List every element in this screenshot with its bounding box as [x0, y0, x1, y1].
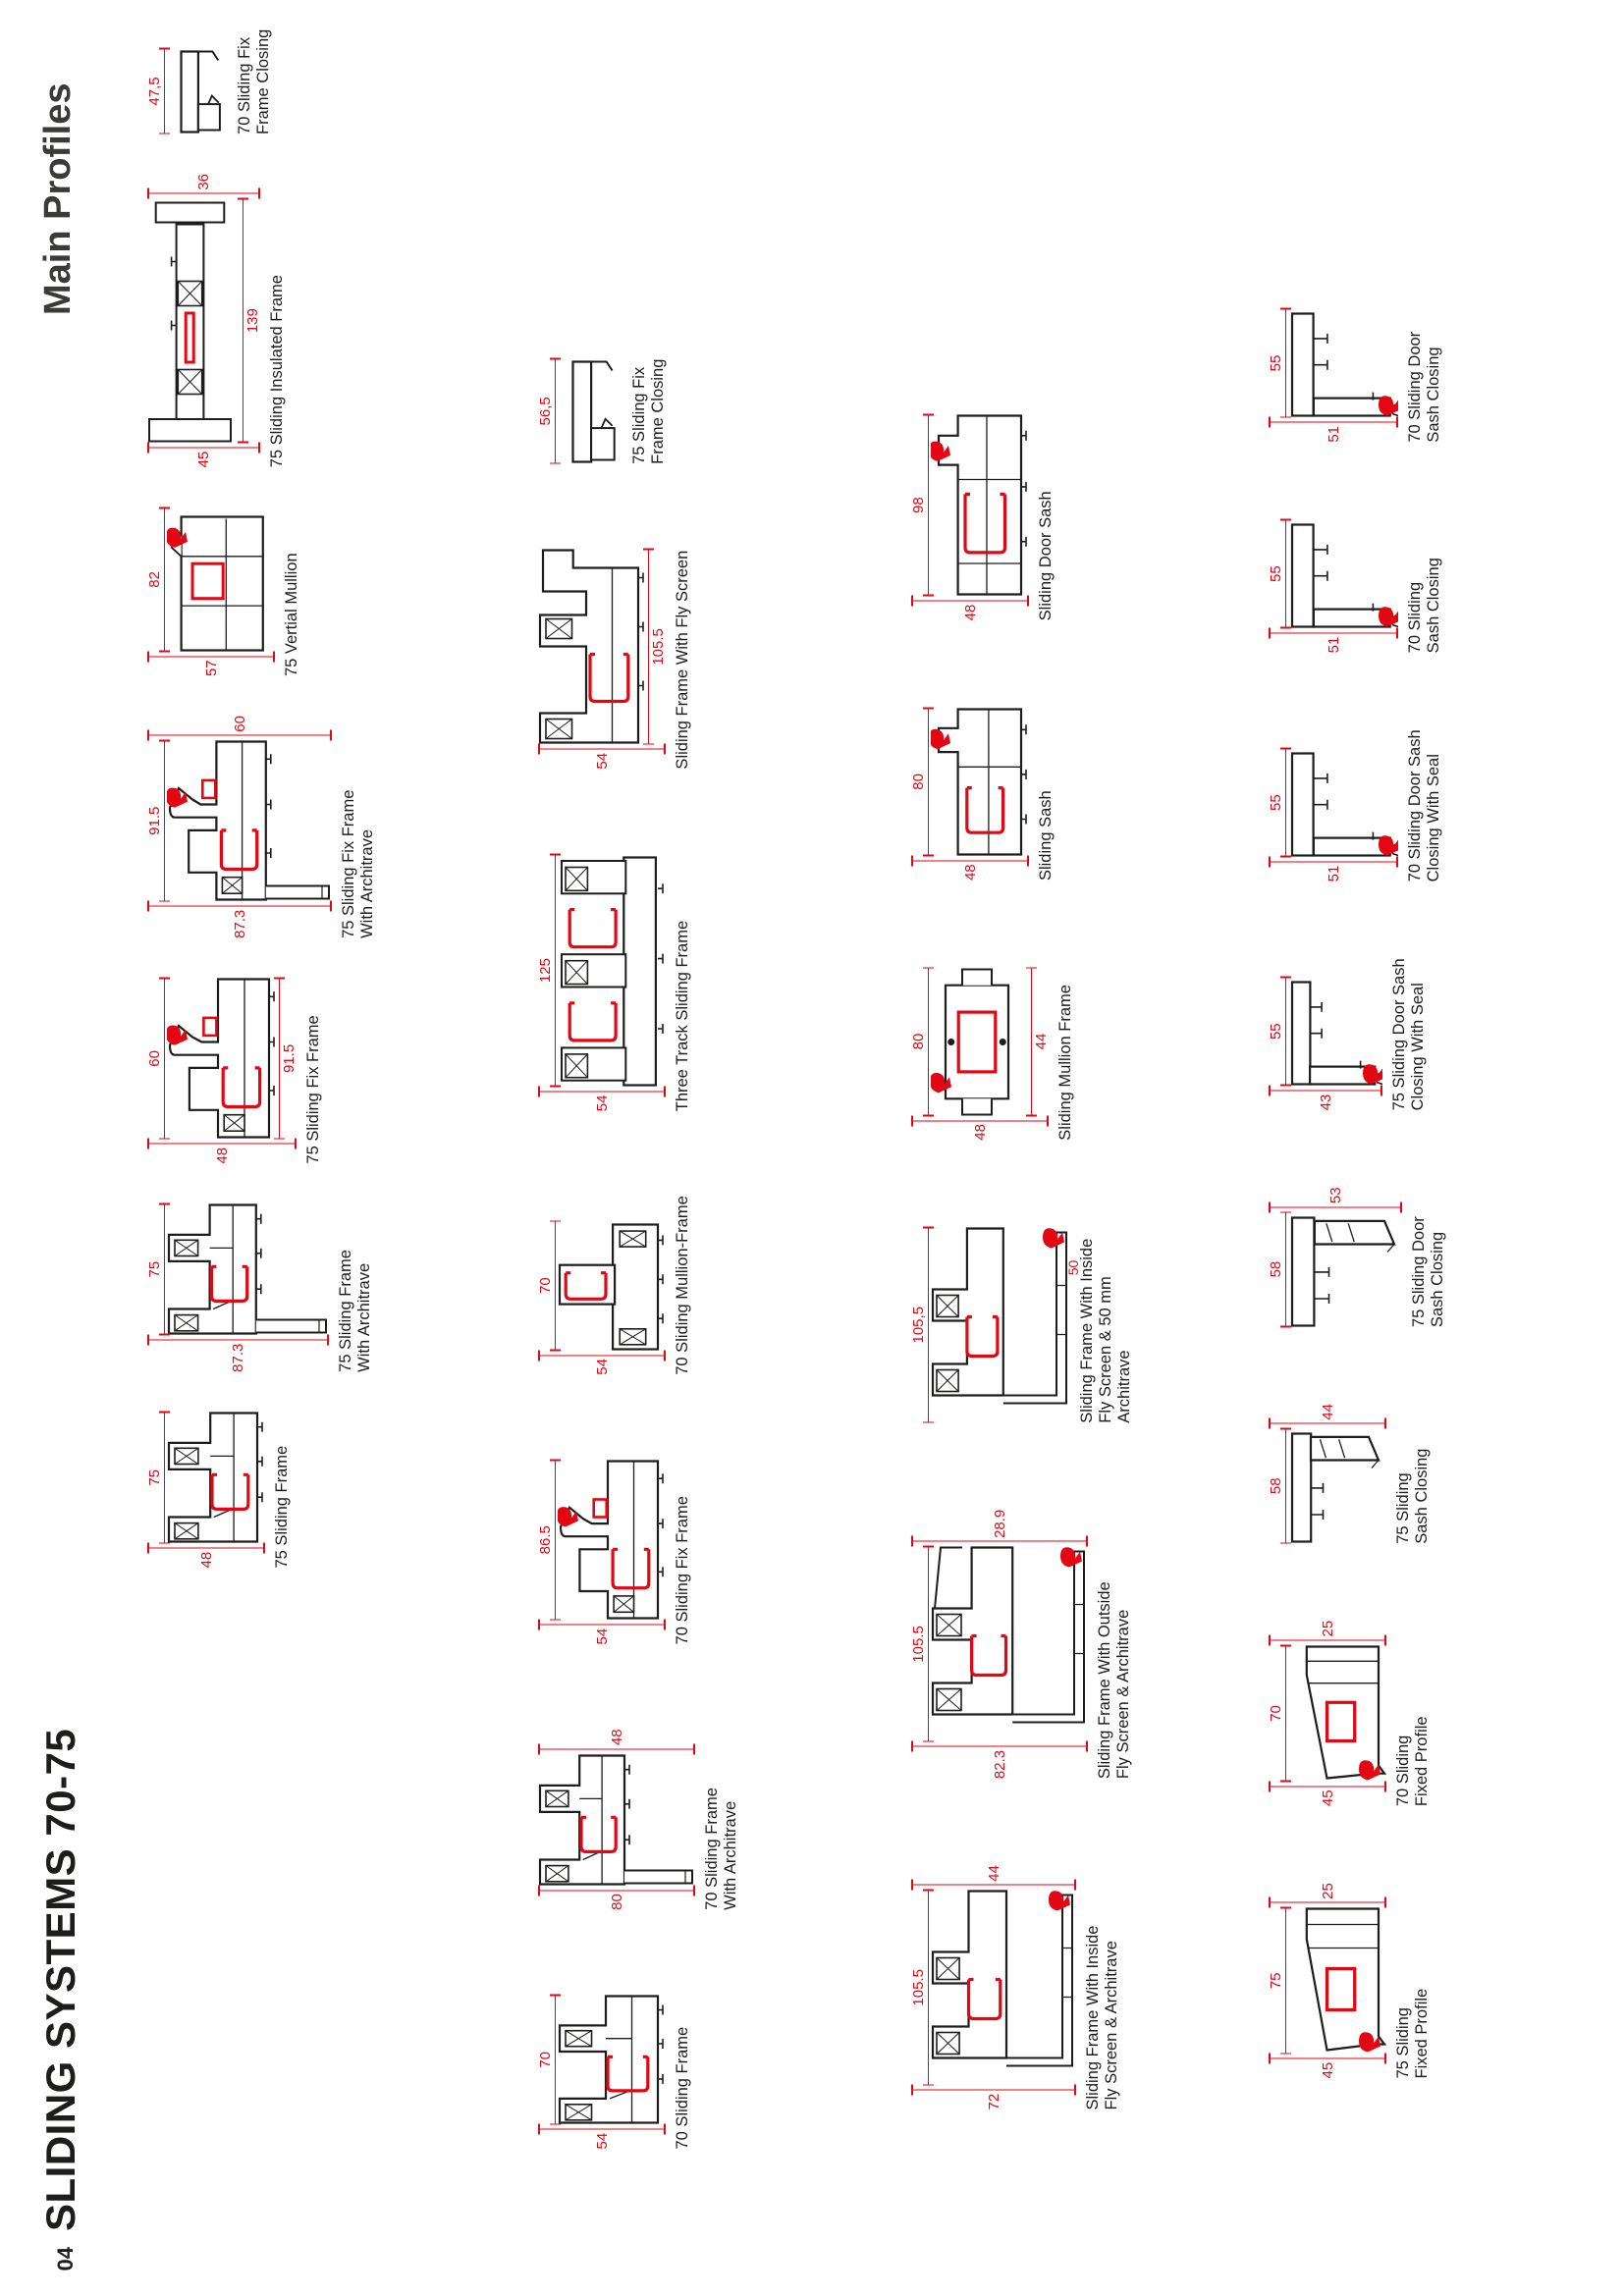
profile-drawing [538, 1753, 695, 1886]
dimension-value: 48 [215, 1147, 230, 1163]
dimension-value: 25 [1321, 1620, 1335, 1636]
dimension-value: 48 [963, 864, 978, 881]
profile-label: 70 Sliding DoorSash Closing [1406, 307, 1443, 442]
profile-label: 75 SlidingSash Closing [1394, 1404, 1432, 1544]
profile-drawing [931, 1226, 1070, 1422]
dimension-left: 54 [538, 2128, 666, 2149]
profile-drawing [167, 507, 275, 652]
profile-card: 105,550Sliding Frame With InsideFly Scre… [911, 1226, 1134, 1422]
dimension-value: 43 [1319, 1094, 1333, 1110]
dimension-top: 105.5 [911, 1545, 929, 1741]
profile-label-line: Sash Closing [1425, 518, 1443, 653]
dimension-top: 58 [1269, 1211, 1286, 1327]
profile-drawing [558, 853, 666, 1087]
profile-drawing [558, 1220, 666, 1351]
profile-card: 5486.570 Sliding Fix Frame [538, 1459, 692, 1644]
dimension-top: 75 [147, 1202, 165, 1335]
profile-label-line: 70 Sliding Frame [674, 1994, 692, 2149]
profile-label-line: Sliding Frame With Outside [1096, 1509, 1114, 1778]
profile-label-line: 75 Sliding Fix [630, 357, 649, 463]
dimension-top: 55 [1269, 307, 1286, 417]
profile-drawing [1288, 976, 1382, 1086]
profile-drawing [931, 1545, 1088, 1741]
dimension-left: 48 [911, 600, 1029, 620]
dimension-value: 55 [1269, 794, 1283, 811]
profile-label-line: 75 Sliding Fix Frame [304, 977, 323, 1163]
dimension-left: 48 [911, 860, 1029, 881]
profile-card: 487575 Sliding Frame [147, 1411, 292, 1568]
dimension-value: 82 [147, 571, 162, 588]
profile-label: Sliding Frame With InsideFly Screen & Ar… [1084, 1865, 1121, 2109]
profile-label-line: Fixed Profile [1413, 1883, 1432, 2078]
dimension-top: 82 [147, 507, 165, 652]
profile-label: 70 Sliding FixFrame Closing [236, 28, 273, 133]
dimension-value: 75 [1269, 1972, 1283, 1989]
dimension-top: 75 [147, 1411, 165, 1543]
profile-label-line: Three Track Sliding Frame [674, 853, 692, 1111]
dimension-top: 47,5 [147, 47, 165, 133]
dimension-value: 86.5 [538, 1525, 553, 1554]
dimension-value: 87.3 [233, 909, 247, 937]
dimension-value: 87.3 [231, 1343, 245, 1371]
profile-drawing [1288, 747, 1398, 857]
dimension-left: 48 [147, 1547, 265, 1568]
profile-card: 488044Sliding Mullion Frame [911, 967, 1075, 1141]
dimension-value: 56,5 [538, 397, 553, 425]
dimension-left: 87.3 [147, 905, 332, 937]
profile-drawing [147, 197, 241, 443]
profile-label: 70 SlidingSash Closing [1406, 518, 1443, 653]
dimension-value: 48 [610, 1729, 624, 1745]
profile-label: 75 Sliding DoorSash Closing [1410, 1187, 1447, 1327]
profile-drawing [1288, 307, 1398, 417]
dimension-top: 80 [911, 967, 929, 1116]
dimension-left: 43 [1269, 1090, 1382, 1110]
profile-card: 804870 Sliding FrameWith Architrave [538, 1729, 740, 1909]
dimension-value: 70 [538, 1277, 553, 1294]
dimension-value: 48 [973, 1124, 988, 1141]
profile-label: Three Track Sliding Frame [674, 853, 692, 1111]
dimension-value: 58 [1269, 1260, 1283, 1277]
dimension-top: 55 [1269, 518, 1286, 628]
dimension-right: 48 [538, 1729, 695, 1749]
dimension-inner: 50 [1065, 1259, 1081, 1275]
dimension-value: 80 [911, 774, 926, 790]
dimension-value: 48 [963, 604, 978, 620]
profile-label-line: Fixed Profile [1413, 1620, 1432, 1805]
rotated-page-content: 04 SLIDING SYSTEMS 70-75 Main Profiles 4… [0, 0, 1624, 2296]
dimension-top: 80 [911, 707, 929, 856]
dimension-value: 44 [987, 1865, 1001, 1882]
profile-card: 4898Sliding Door Sash [911, 413, 1056, 620]
profile-label-line: Frame Closing [649, 357, 668, 463]
profile-card: 585375 Sliding DoorSash Closing [1269, 1187, 1447, 1327]
dimension-top: 75 [1269, 1906, 1286, 2054]
profile-card: 4880Sliding Sash [911, 707, 1056, 881]
profile-label-line: Architrave [1115, 1226, 1134, 1422]
dimension-left: 45 [1269, 1786, 1386, 1806]
dimension-value: 72 [987, 2093, 1001, 2109]
page-header: 04 SLIDING SYSTEMS 70-75 Main Profiles [37, 82, 84, 2270]
dimension-value: 44 [1034, 1033, 1049, 1049]
dimension-value: 125 [538, 958, 553, 983]
dimension-left: 48 [147, 1143, 297, 1163]
profile-card: 515570 SlidingSash Closing [1269, 518, 1443, 653]
dimension-value: 45 [196, 451, 211, 467]
profile-label-line: With Architrave [722, 1729, 740, 1909]
dimension-value: 70 [538, 2051, 553, 2067]
profile-label: Sliding Frame With InsideFly Screen & 50… [1078, 1226, 1134, 1422]
dimension-top: 58 [1269, 1427, 1286, 1543]
dimension-left: 82.3 [911, 1745, 1088, 1778]
profile-label-line: Sash Closing [1413, 1404, 1432, 1544]
profile-label: 70 Sliding Fix Frame [674, 1459, 692, 1644]
dimension-value: 54 [595, 2132, 610, 2149]
profile-drawing [558, 1459, 666, 1620]
profile-card: 515570 Sliding DoorSash Closing [1269, 307, 1443, 442]
profile-drawing [167, 1202, 329, 1335]
dimension-top: 55 [1269, 976, 1286, 1086]
dimension-top: 105.5 [911, 1889, 929, 2085]
profile-card: 578275 Vertial Mullion [147, 507, 301, 676]
profile-label: 75 Sliding Door SashClosing With Seal [1390, 958, 1428, 1110]
dimension-value: 57 [204, 660, 219, 676]
dimension-left: 54 [538, 1091, 666, 1111]
dimension-value: 80 [610, 1894, 624, 1910]
profile-card: 87.37575 Sliding FrameWith Architrave [147, 1202, 374, 1371]
dimension-value: 105.5 [651, 628, 666, 666]
dimension-top: 70 [538, 1994, 556, 2124]
dimension-value: 45 [1321, 1789, 1335, 1806]
profile-label-line: 75 Sliding Door Sash [1390, 958, 1409, 1110]
profile-label-line: 75 Sliding Door [1410, 1187, 1429, 1327]
profile-card: 72105.544Sliding Frame With InsideFly Sc… [911, 1865, 1121, 2109]
profile-card: 451393675 Sliding Insulated Frame [147, 173, 287, 466]
dimension-value: 139 [245, 308, 260, 333]
dimension-left: 80 [538, 1890, 695, 1910]
profile-label: 75 Sliding Fix Frame [304, 977, 323, 1163]
profile-card: 45752575 SlidingFixed Profile [1269, 1883, 1432, 2078]
dimension-top: 105,5 [911, 1226, 929, 1422]
profile-label: Sliding Sash [1037, 707, 1056, 881]
catalog-page: 04 SLIDING SYSTEMS 70-75 Main Profiles 4… [0, 0, 1624, 2296]
dimension-value: 98 [911, 497, 926, 513]
dimension-right: 25 [1269, 1883, 1386, 1903]
dimension-value: 54 [595, 1628, 610, 1644]
profile-card: 435575 Sliding Door SashClosing With Sea… [1269, 958, 1428, 1110]
profile-label: 75 Sliding FixFrame Closing [630, 357, 668, 463]
dimension-right: 53 [1269, 1187, 1402, 1207]
profile-row-sash-series: 72105.544Sliding Frame With InsideFly Sc… [911, 413, 1134, 2109]
profile-drawing [1288, 1211, 1402, 1327]
profile-label: 75 SlidingFixed Profile [1394, 1883, 1432, 2078]
profile-drawing [167, 47, 228, 133]
dimension-left: 51 [1269, 421, 1398, 442]
dimension-right: 36 [147, 173, 260, 193]
profile-label: Sliding Frame With OutsideFly Screen & A… [1096, 1509, 1133, 1778]
profile-label-line: 70 Sliding Door Sash [1406, 729, 1425, 881]
dimension-value: 28.9 [993, 1509, 1007, 1537]
dimension-left: 54 [538, 1624, 666, 1644]
profile-drawing [1288, 1427, 1386, 1543]
dimension-top: 91.5 [147, 739, 165, 901]
dimension-left: 54 [538, 1355, 666, 1375]
dimension-left: 48 [911, 1120, 1049, 1141]
profile-label-line: 75 Sliding [1394, 1883, 1413, 2078]
dimension-value: 25 [1321, 1883, 1335, 1899]
profile-drawing [558, 357, 623, 463]
dimension-value: 51 [1326, 636, 1341, 653]
dimension-value: 60 [233, 716, 247, 732]
profile-row-closing-series: 45752575 SlidingFixed Profile45702570 Sl… [1269, 307, 1447, 2078]
dimension-value: 91.5 [147, 806, 162, 834]
dimension-left: 45 [147, 447, 260, 467]
profile-drawing [558, 1994, 666, 2124]
dimension-top: 98 [911, 413, 929, 596]
profile-label: 70 Sliding Mullion-Frame [674, 1196, 692, 1375]
profile-drawing [931, 967, 1029, 1116]
profile-drawing [931, 1889, 1076, 2085]
profile-label-line: Frame Closing [254, 28, 273, 133]
profile-label-line: With Architrave [355, 1202, 374, 1371]
profile-card: 584475 SlidingSash Closing [1269, 1404, 1432, 1544]
profile-drawing [1288, 1906, 1386, 2054]
dimension-right: 44 [1269, 1404, 1386, 1424]
dimension-bottom: 105.5 [648, 548, 666, 744]
dimension-value: 105.5 [911, 1626, 926, 1663]
dimension-top: 86.5 [538, 1459, 556, 1620]
profile-label-line: Sash Closing [1425, 307, 1443, 442]
dimension-left: 57 [147, 656, 275, 676]
profile-label-line: 70 Sliding Fix [236, 28, 254, 133]
dimension-bottom: 139 [243, 197, 260, 443]
dimension-left: 45 [1269, 2057, 1386, 2078]
dimension-value: 105.5 [911, 1969, 926, 2006]
profile-label: 70 SlidingFixed Profile [1394, 1620, 1432, 1805]
dimension-value: 51 [1326, 425, 1341, 442]
dimension-top: 70 [538, 1220, 556, 1351]
dimension-left: 87.3 [147, 1339, 329, 1371]
dimension-right: 60 [147, 716, 332, 736]
dimension-value: 58 [1269, 1477, 1283, 1494]
dimension-bottom: 44 [1031, 967, 1049, 1116]
profile-label-line: Sliding Frame With Fly Screen [674, 548, 692, 769]
profile-drawing [167, 739, 332, 901]
profile-label-line: 75 Sliding Insulated Frame [268, 173, 287, 466]
profile-card: 45702570 SlidingFixed Profile [1269, 1620, 1432, 1805]
profile-drawing [1288, 1644, 1386, 1782]
profile-card: 87.391.56075 Sliding Fix FrameWith Archi… [147, 716, 377, 938]
dimension-left: 51 [1269, 861, 1398, 881]
profile-label: Sliding Door Sash [1037, 413, 1056, 620]
dimension-value: 105,5 [911, 1306, 926, 1343]
dimension-left: 51 [1269, 632, 1398, 653]
profile-label: 75 Sliding Insulated Frame [268, 173, 287, 466]
profile-label-line: 70 Sliding [1406, 518, 1425, 653]
profile-card: 547070 Sliding Frame [538, 1994, 692, 2149]
profile-label-line: Sliding Frame With Inside [1084, 1865, 1103, 2109]
dimension-value: 47,5 [147, 77, 162, 105]
profile-label-line: Closing With Seal [1409, 958, 1428, 1110]
profile-label: Sliding Frame With Fly Screen [674, 548, 692, 769]
profile-label: Sliding Mullion Frame [1056, 967, 1075, 1141]
profile-label-line: Fly Screen & Architrave [1114, 1509, 1133, 1778]
profile-label-line: Closing With Seal [1425, 729, 1443, 881]
dimension-top: 125 [538, 853, 556, 1087]
dimension-value: 55 [1269, 565, 1283, 582]
dimension-right: 25 [1269, 1620, 1386, 1640]
dimension-value: 54 [595, 1359, 610, 1375]
profile-label: 70 Sliding Door SashClosing With Seal [1406, 729, 1443, 881]
profile-label: 75 Sliding FrameWith Architrave [337, 1202, 374, 1371]
profile-label: 75 Vertial Mullion [283, 507, 301, 676]
dimension-top: 55 [1269, 747, 1286, 857]
profile-label-line: 75 Sliding Frame [337, 1202, 355, 1371]
dimension-right: 44 [911, 1865, 1076, 1886]
dimension-value: 80 [911, 1033, 926, 1049]
profile-card: 486091.575 Sliding Fix Frame [147, 977, 323, 1163]
profile-label-line: 75 Sliding Frame [273, 1411, 292, 1568]
profile-label-line: With Architrave [358, 716, 377, 938]
profile-label-line: 70 Sliding Fix Frame [674, 1459, 692, 1644]
dimension-value: 53 [1328, 1187, 1343, 1203]
profile-label: 70 Sliding FrameWith Architrave [703, 1729, 740, 1909]
dimension-value: 45 [1321, 2061, 1335, 2078]
dimension-value: 54 [595, 752, 610, 769]
profile-label-line: Sliding Frame With Inside [1078, 1226, 1097, 1422]
profile-drawing [167, 977, 277, 1139]
page-number: 04 [53, 2247, 79, 2270]
profile-label-line: 75 Sliding [1394, 1404, 1413, 1544]
dimension-left: 54 [538, 748, 666, 769]
profile-card: 547070 Sliding Mullion-Frame [538, 1196, 692, 1375]
profile-label-line: 70 Sliding Door [1406, 307, 1425, 442]
dimension-value: 60 [147, 1050, 162, 1067]
dimension-value: 55 [1269, 1023, 1283, 1040]
dimension-value: 55 [1269, 354, 1283, 371]
dimension-value: 48 [199, 1551, 214, 1568]
dimension-top: 56,5 [538, 357, 556, 463]
profile-label: 75 Sliding Frame [273, 1411, 292, 1568]
profile-label-line: 70 Sliding Mullion-Frame [674, 1196, 692, 1375]
profile-card: 515570 Sliding Door SashClosing With Sea… [1269, 729, 1443, 881]
dimension-value: 91.5 [282, 1043, 297, 1072]
dimension-bottom: 91.5 [279, 977, 297, 1139]
dimension-top: 70 [1269, 1644, 1286, 1782]
profile-label: 70 Sliding Frame [674, 1994, 692, 2149]
profile-label-line: Fly Screen & Architrave [1103, 1865, 1121, 2109]
profile-card: 54105.5Sliding Frame With Fly Screen [538, 548, 692, 769]
profile-drawing [1288, 518, 1398, 628]
profile-drawing [931, 707, 1029, 856]
dimension-value: 75 [147, 1260, 162, 1277]
profile-label-line: 70 Sliding [1394, 1620, 1413, 1805]
profile-label-line: 75 Vertial Mullion [283, 507, 301, 676]
profile-label: 75 Sliding Fix FrameWith Architrave [340, 716, 377, 938]
dimension-value: 36 [196, 173, 211, 189]
profile-drawing [167, 1411, 265, 1543]
profile-label-line: Sliding Door Sash [1037, 413, 1056, 620]
page-subtitle: Main Profiles [37, 82, 80, 315]
profile-row-70-series: 547070 Sliding Frame804870 Sliding Frame… [538, 357, 740, 2149]
page-title: SLIDING SYSTEMS 70-75 [37, 1728, 84, 2230]
profile-label-line: Sliding Sash [1037, 707, 1056, 881]
profile-label-line: 75 Sliding Fix Frame [340, 716, 358, 938]
profile-drawing [538, 548, 646, 744]
dimension-value: 70 [1269, 1705, 1283, 1722]
profile-card: 82.3105.528.9Sliding Frame With OutsideF… [911, 1509, 1133, 1778]
profile-card: 47,570 Sliding FixFrame Closing [147, 28, 273, 133]
dimension-top: 60 [147, 977, 165, 1139]
dimension-value: 51 [1326, 865, 1341, 881]
profile-label-line: Sash Closing [1429, 1187, 1447, 1327]
dimension-value: 82.3 [993, 1749, 1007, 1778]
profile-label-line: 70 Sliding Frame [703, 1729, 722, 1909]
dimension-value: 54 [595, 1095, 610, 1111]
profile-drawing [931, 413, 1029, 596]
profile-label-line: Sliding Mullion Frame [1056, 967, 1075, 1141]
dimension-right: 28.9 [911, 1509, 1088, 1541]
dimension-value: 75 [147, 1468, 162, 1485]
profile-label-line: Fly Screen & 50 mm [1097, 1226, 1115, 1422]
dimension-value: 44 [1321, 1404, 1335, 1420]
profile-card: 54125Three Track Sliding Frame [538, 853, 692, 1111]
profile-card: 56,575 Sliding FixFrame Closing [538, 357, 668, 463]
profile-row-75-series: 487575 Sliding Frame87.37575 Sliding Fra… [147, 28, 377, 1568]
dimension-left: 72 [911, 2089, 1076, 2109]
